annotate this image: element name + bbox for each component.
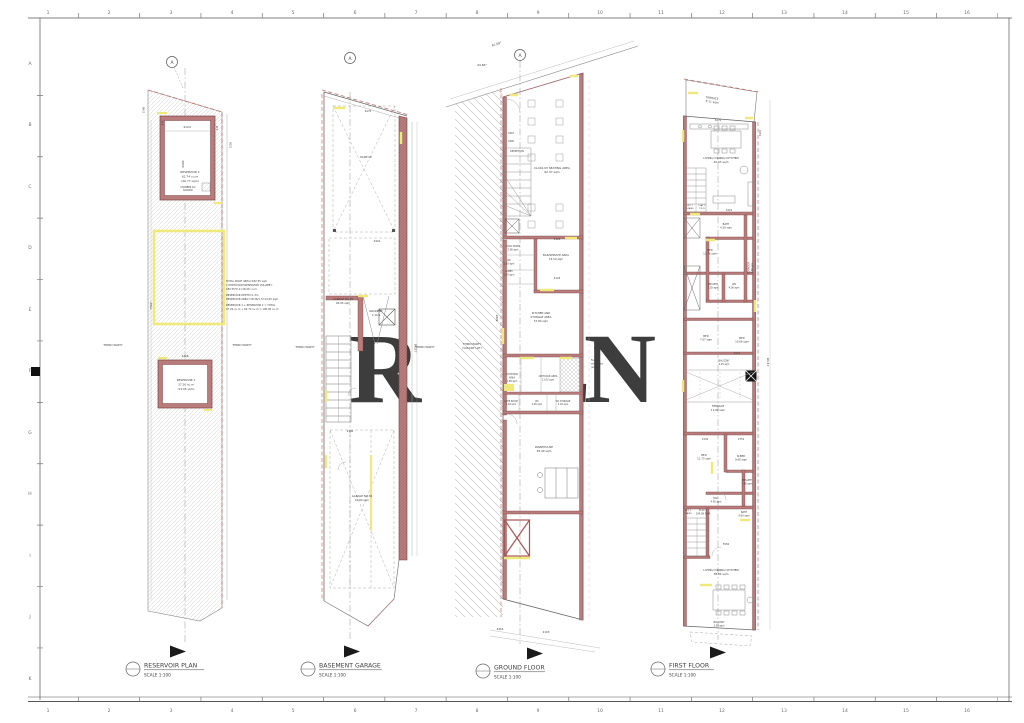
room-label: LIFT 1	[685, 510, 692, 512]
drawing-label: 6	[354, 10, 357, 16]
section-marker-letter: A	[348, 56, 352, 62]
reservoir-notes: TOTAL ROOF AREA=182.55 sqm1 HEKTO/SQM RE…	[226, 279, 279, 311]
drawing-label: 11	[658, 10, 664, 16]
room-area: 7.07 sqm	[700, 338, 713, 342]
section-marker-letter: A	[518, 53, 522, 59]
room-label: T.P.70	[699, 208, 706, 210]
drawing-label: 12	[719, 708, 725, 714]
dimension: 4124	[726, 208, 733, 212]
dimension: 4454	[497, 627, 504, 631]
drawing-label: I	[29, 553, 30, 559]
drawing-label: 14	[842, 10, 848, 16]
dimension: 6170	[365, 109, 372, 113]
fold-mark	[31, 367, 40, 376]
ruler-bottom: 12345678910111213141516	[47, 708, 970, 714]
room-area: 40.95 sqm	[336, 301, 351, 305]
room-area: 104.08 SQM	[696, 513, 711, 516]
reservoir-plan: A15601550412424024560807500RESERVOIR 262…	[143, 57, 233, 658]
drawing-label: C	[28, 184, 31, 190]
plan-scale: SCALE 1:100	[494, 675, 521, 680]
dimension: 5550	[723, 542, 730, 546]
dimension: 2130	[702, 437, 709, 441]
plan-title: FIRST FLOOR	[669, 663, 710, 670]
room-label: RECEPTION	[510, 150, 524, 153]
plan-title: RESERVOIR PLAN	[144, 663, 198, 670]
room-label: BED	[707, 248, 712, 252]
lift-icon	[746, 371, 757, 382]
room-area: 4.60 sqm	[738, 515, 750, 518]
drawing-label: 5	[292, 708, 295, 714]
room-area: 4.25 sqm	[719, 363, 730, 366]
room-area: 11.03 sqm	[542, 378, 555, 381]
section-arrow-icon	[527, 648, 543, 660]
room-label: BED	[701, 453, 706, 457]
drawing-label: 7	[415, 708, 418, 714]
drawing-label: 8	[476, 708, 479, 714]
dimension: 4124	[734, 351, 741, 355]
room-label: RAMP UP	[360, 155, 372, 159]
room-area: (14.05 sqm)	[177, 387, 194, 391]
site-label: THIRD PARTY	[102, 343, 123, 347]
drawing-label: 16	[964, 708, 970, 714]
section-marker-letter: A	[170, 60, 174, 66]
room-area: 4.06 sqm	[729, 287, 740, 290]
drawing-label: 1	[47, 708, 50, 714]
site-label: THIRD PARTY	[231, 343, 252, 347]
room-area: 3.60 sqm	[742, 483, 753, 486]
drawing-label: 4	[231, 10, 234, 16]
drawing-sheet: REN 12345678910111213141516 123456789101…	[0, 0, 1024, 723]
manhole	[202, 183, 210, 191]
drawing-label: 2	[108, 10, 111, 16]
drawing-label: 13	[781, 10, 787, 16]
drawing-label: 12	[719, 10, 725, 16]
room-label: FLAT 1	[699, 204, 707, 207]
terrace-outline	[686, 80, 757, 122]
drawing-label: 10	[597, 708, 603, 714]
plan-title: GROUND FLOOR	[494, 665, 545, 672]
room-label: STAIRS	[686, 207, 694, 210]
dimension: 1803	[508, 132, 514, 135]
drawing-label: 6	[354, 708, 357, 714]
room-area: 9.68 sqm	[735, 458, 748, 462]
dimension: 2103	[543, 630, 550, 634]
room-area: 3.28 sqm	[708, 287, 719, 290]
dimension: 6080	[181, 160, 185, 167]
room-area: 4.30 sqm	[720, 226, 732, 230]
plan-title: BASEMENT GARAGE	[319, 663, 381, 670]
room-area: 11.73 sqm	[697, 457, 711, 461]
calc-note: RESERVOIR 1 + RESERVOIR 2 = TOTAL	[226, 303, 276, 307]
ruler-top: 12345678910111213141516	[47, 10, 970, 16]
dimension: 4124	[554, 237, 561, 241]
dimension: 240	[162, 120, 165, 125]
calc-note: 182.55*0.1=18.26 cu.m	[226, 287, 257, 291]
room-area: 41.84 sqm	[355, 498, 370, 502]
room-label: W.BED	[737, 454, 746, 458]
dimension: 1560	[143, 106, 146, 113]
calc-note: TOTAL ROOF AREA=182.55 sqm	[226, 279, 268, 283]
angle-annotation: 61.69°	[491, 41, 502, 48]
room-label: RESERVOIR 2	[180, 170, 199, 174]
vacant-lot-hatch	[455, 88, 503, 617]
drawing-label: 8	[476, 10, 479, 16]
reservoir-plan-title: RESERVOIR PLAN SCALE 1:100	[126, 662, 205, 678]
note: (vent)	[591, 366, 598, 369]
room-label: LIFT 1	[687, 205, 694, 207]
first-floor-title: FIRST FLOOR SCALE 1:100	[651, 662, 715, 678]
drawing-label: 1	[47, 10, 50, 16]
calc-note: 37.26 cu.m + 62.74 cu.m = 100.00 cu.m	[226, 307, 279, 311]
balcony-outline	[690, 632, 752, 646]
drawing-label: 3	[170, 10, 173, 16]
angle-annotation: 44.84°	[477, 63, 488, 67]
section-arrow-icon	[170, 646, 186, 658]
room-area: 2.65 sqm	[532, 403, 542, 406]
dimension: 1800	[508, 140, 514, 143]
drawing-label: 5	[292, 10, 295, 16]
room-area: 62.37 sqm	[544, 170, 560, 174]
room-area: 40.63 sqm	[714, 160, 729, 164]
drawing-label: K	[29, 676, 33, 682]
plan-scale: SCALE 1:100	[144, 673, 171, 678]
drawing-canvas: REN 12345678910111213141516 123456789101…	[0, 0, 1024, 723]
room-area: 37.26 cu.m	[178, 383, 194, 387]
drawing-label: 3	[170, 708, 173, 714]
site-label: PARTY	[594, 346, 603, 350]
site-label: THIRD PARTY	[414, 345, 435, 349]
drawing-label: 14	[842, 708, 848, 714]
drawing-label: J	[28, 614, 30, 620]
room-area: 2.06 sqm	[508, 248, 519, 251]
site-label: THIRD PARTY	[294, 345, 315, 349]
room-area: (20.77 sqm)	[181, 179, 199, 183]
drawing-label: 9	[537, 10, 540, 16]
room-area: 59.49 sqm	[537, 449, 552, 453]
drawing-label: 4	[231, 708, 234, 714]
room-area: 10.66 sqm	[735, 340, 749, 344]
room-area: 11.76 sqm	[703, 252, 717, 256]
room-label: BED	[739, 336, 744, 340]
calc-note: RESERVOIR AREA=18.26/1.3=14.05 sqm	[226, 297, 279, 301]
dimension: 4900	[758, 129, 762, 136]
dimension: 2752	[738, 437, 745, 441]
drawing-label: 11	[658, 708, 664, 714]
calc-note: RESERVOIR DEPTH=1.3m	[226, 293, 259, 297]
drawing-label: 7	[415, 10, 418, 16]
dimension: 6085	[495, 314, 499, 321]
dimension: 2421	[373, 239, 380, 243]
room-area: 11.80 sqm	[711, 408, 726, 412]
deck-hatch	[560, 358, 580, 392]
drawing-label: B	[28, 122, 31, 128]
drawing-label: A	[28, 61, 32, 67]
room-area: 15.50 sqm	[549, 257, 564, 261]
room-area: 4.95 sqm	[711, 501, 722, 504]
drawing-label: G	[28, 430, 32, 436]
plan-scale: SCALE 1:100	[319, 673, 346, 678]
dimension: 245	[216, 125, 219, 130]
drawing-label: 15	[903, 708, 909, 714]
dimension: 4124	[554, 276, 561, 280]
room-label: GRADIENT	[369, 309, 383, 313]
room-area: 2.26 sqm	[558, 403, 568, 406]
building-outline	[503, 73, 583, 620]
calc-note: 1 HEKTO/SQM RESERVOIR VOLUME=	[226, 283, 273, 287]
room-area: 4.58 sqm	[507, 380, 518, 383]
dimension: 2140	[347, 429, 354, 433]
stairs	[326, 336, 351, 422]
drawing-label: 2	[108, 708, 111, 714]
drawing-label: 10	[597, 10, 603, 16]
site-label: (VACANT LOT)	[462, 346, 482, 350]
room-label: STAIRS	[684, 512, 692, 515]
dimension: 7500	[149, 302, 153, 309]
drawing-label: E	[29, 307, 32, 313]
basement-garage-title: BASEMENT GARAGE SCALE 1:100	[301, 662, 383, 678]
dimension: 4124	[183, 125, 191, 129]
room-area: 3.54 sqm	[714, 625, 725, 628]
room-area: 6.80 sqm	[751, 263, 754, 273]
building-outline	[684, 116, 756, 630]
room-area: 57.84 sqm	[534, 319, 549, 323]
section-arrow-icon	[710, 647, 726, 659]
drawing-label: 13	[781, 708, 787, 714]
dimension: 600x600	[183, 189, 193, 192]
plan-scale: SCALE 1:100	[669, 673, 696, 678]
drawing-label: 9	[537, 708, 540, 714]
dimension: 6170	[715, 118, 722, 122]
room-area: 1.35 sqm	[504, 273, 515, 276]
dimension: 21745	[766, 357, 770, 366]
room-area: 62.74 cu.m	[182, 175, 199, 179]
ground-floor-title: GROUND FLOOR SCALE 1:100	[476, 664, 546, 680]
room-area: 1.50 sqm	[504, 262, 515, 265]
room-label: BATH	[723, 222, 730, 226]
section-arrow-icon	[344, 646, 360, 658]
drawing-label: F	[29, 368, 32, 374]
first-floor-plan: TERRACE8.11 sqm61704900LIVING/ DINING/ K…	[683, 79, 770, 659]
room-label: 1:10.6	[372, 313, 381, 317]
drawing-label: 16	[964, 10, 970, 16]
room-area: 38.84 sqm	[714, 572, 729, 576]
dimension: 1550	[230, 141, 233, 148]
dimension: 4106	[182, 354, 189, 358]
drawing-label: 15	[903, 10, 909, 16]
drawing-label: D	[28, 245, 32, 251]
dimension: 2150	[383, 337, 390, 341]
highlight-patch	[504, 384, 514, 391]
room-area: 1.94 sqm	[506, 403, 516, 406]
room-label: BED	[703, 334, 708, 338]
room-label: RESERVOIR 1	[177, 378, 196, 382]
drawing-label: H	[28, 491, 31, 497]
